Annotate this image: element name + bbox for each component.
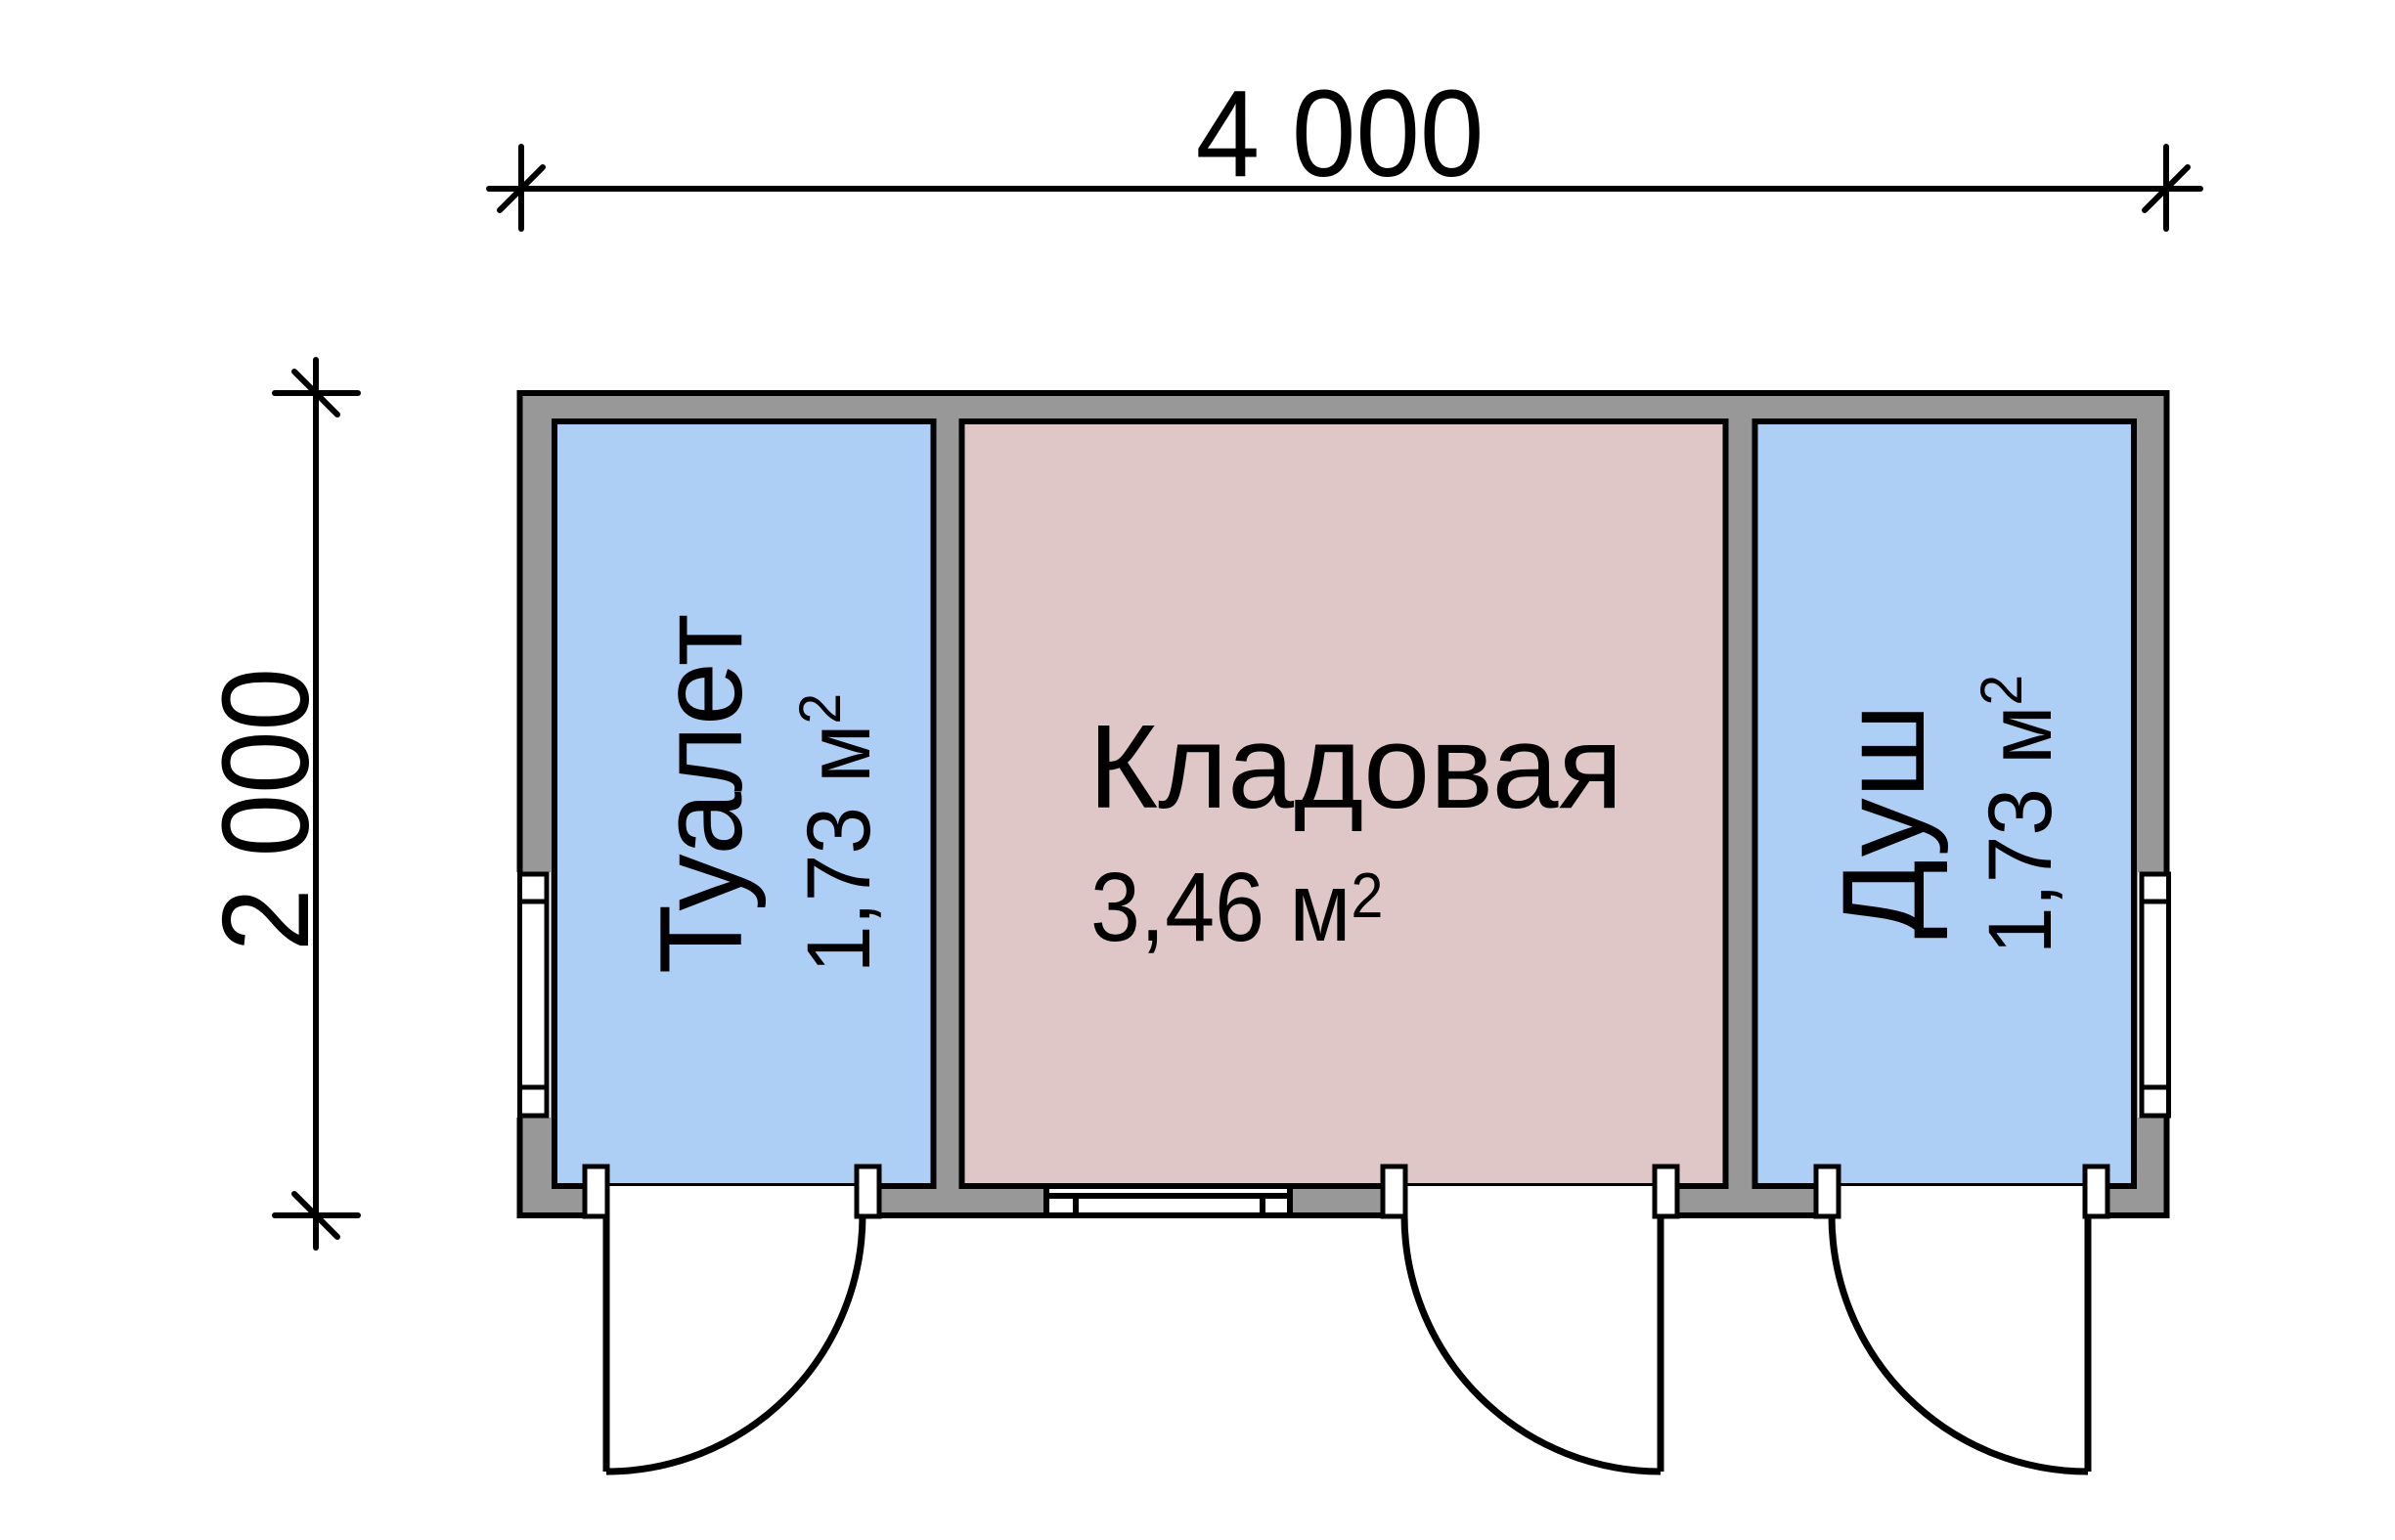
svg-text:Туалет: Туалет — [636, 614, 767, 974]
svg-text:1,73 м2: 1,73 м2 — [788, 693, 890, 973]
svg-text:Кладовая: Кладовая — [1088, 700, 1623, 833]
svg-text:Душ: Душ — [1818, 704, 1949, 939]
svg-text:1,73 м2: 1,73 м2 — [1970, 675, 2071, 954]
svg-text:3,46 м2: 3,46 м2 — [1090, 853, 1383, 962]
svg-text:4 000: 4 000 — [1196, 65, 1485, 201]
svg-text:2 000: 2 000 — [197, 668, 335, 951]
